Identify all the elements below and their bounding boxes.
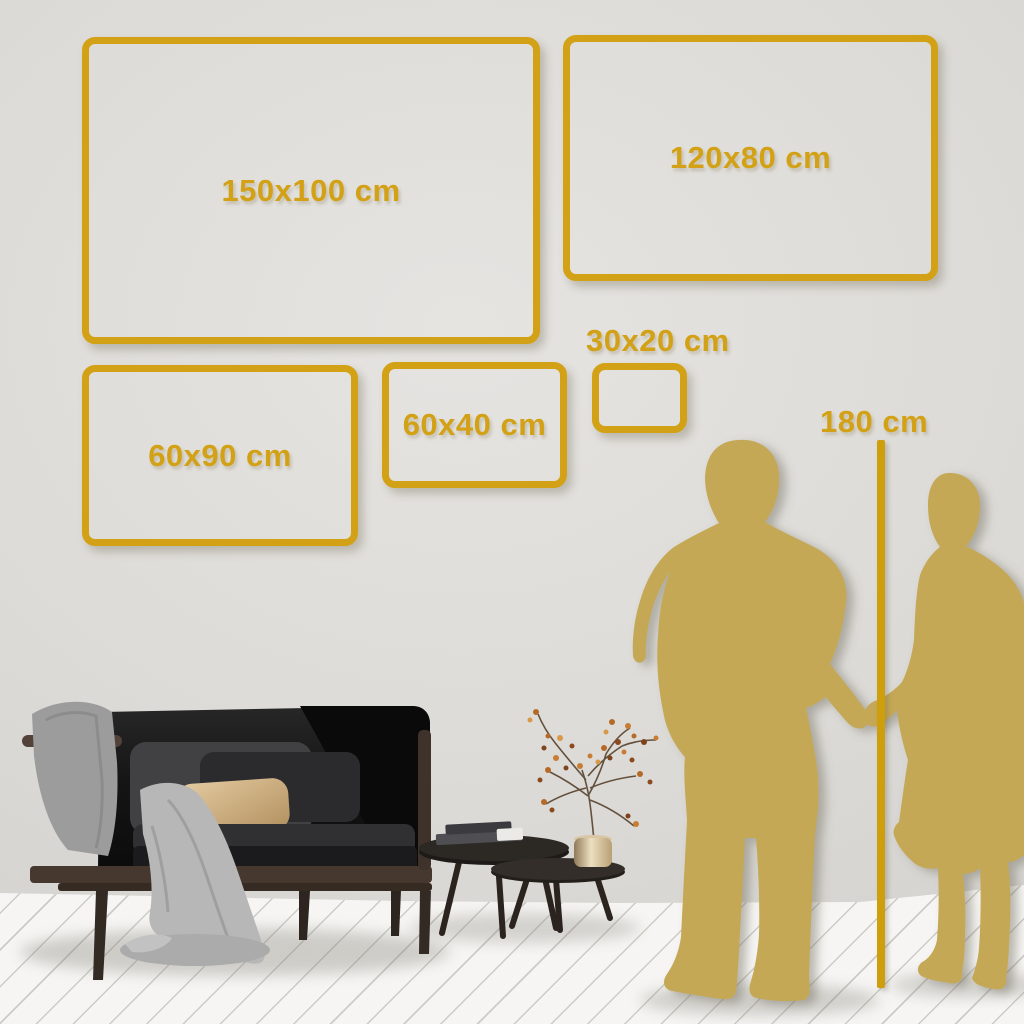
- size-label-150x100: 150x100 cm: [221, 173, 400, 209]
- size-frame-120x80: 120x80 cm: [563, 35, 938, 281]
- woman-silhouette: [864, 473, 1024, 989]
- size-frame-60x40: 60x40 cm: [382, 362, 567, 488]
- size-frame-30x20: [592, 363, 687, 433]
- height-measure-line: [877, 440, 885, 988]
- height-label: 180 cm: [820, 404, 928, 440]
- size-label-60x90: 60x90 cm: [148, 438, 292, 474]
- size-frame-150x100: 150x100 cm: [82, 37, 540, 344]
- size-label-30x20: 30x20 cm: [586, 323, 730, 359]
- size-guide-room-scene: 150x100 cm 120x80 cm 60x90 cm 60x40 cm 3…: [0, 0, 1024, 1024]
- couple-silhouette: [633, 440, 1024, 1001]
- man-silhouette: [633, 440, 869, 1001]
- size-label-120x80: 120x80 cm: [670, 140, 831, 176]
- berries: [528, 709, 659, 827]
- size-frame-60x90: 60x90 cm: [82, 365, 358, 546]
- size-label-60x40: 60x40 cm: [403, 407, 547, 443]
